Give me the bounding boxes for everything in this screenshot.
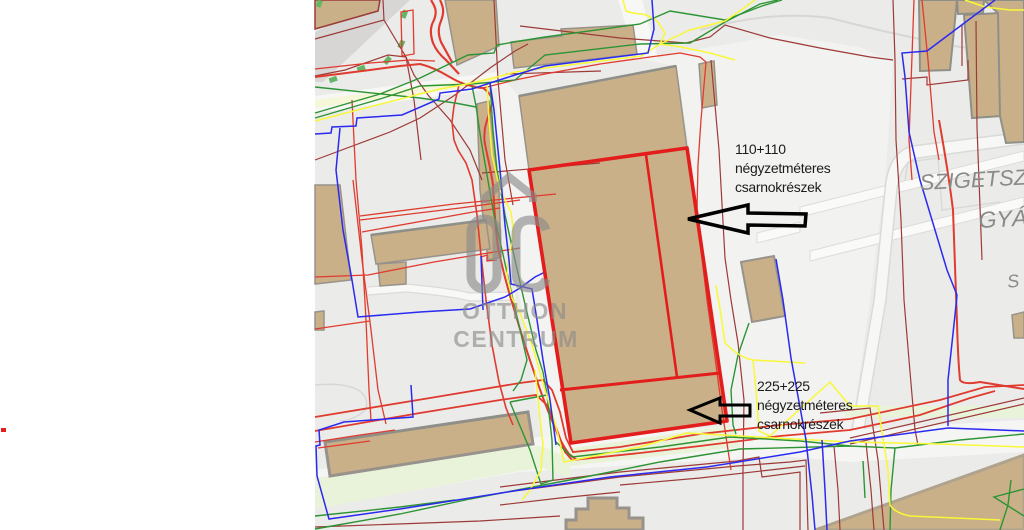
svg-text:225+225: 225+225 xyxy=(757,378,810,394)
svg-text:SZIGETSZE: SZIGETSZE xyxy=(919,164,1024,195)
svg-text:OTTHON: OTTHON xyxy=(462,298,568,324)
svg-text:csarnokrészek: csarnokrészek xyxy=(757,416,845,432)
svg-text:CENTRUM: CENTRUM xyxy=(453,326,579,352)
svg-text:csarnokrészek: csarnokrészek xyxy=(735,179,823,195)
svg-text:négyzetméteres: négyzetméteres xyxy=(735,160,831,176)
svg-text:négyzetméteres: négyzetméteres xyxy=(757,397,853,413)
svg-text:110+110: 110+110 xyxy=(735,141,786,157)
svg-text:GYÁ: GYÁ xyxy=(978,204,1024,233)
